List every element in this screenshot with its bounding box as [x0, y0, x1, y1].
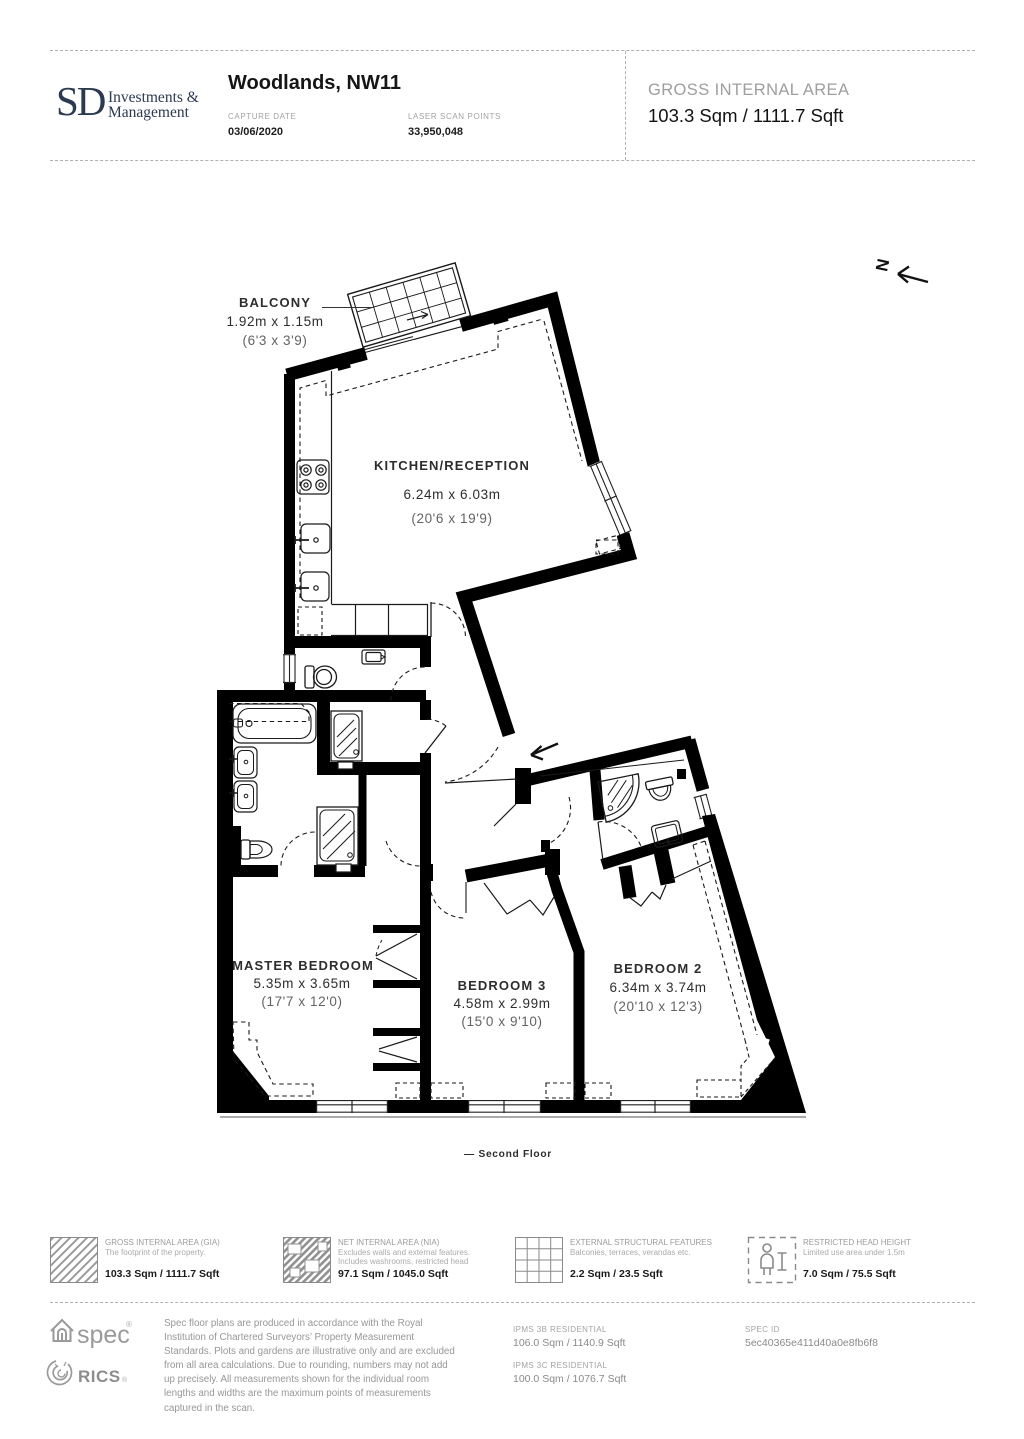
svg-text:— Second Floor: — Second Floor — [464, 1149, 552, 1160]
svg-text:BEDROOM 2: BEDROOM 2 — [614, 961, 703, 976]
svg-text:®: ® — [126, 1320, 132, 1329]
svg-text:4.58m x 2.99m: 4.58m x 2.99m — [453, 996, 550, 1011]
svg-text:(15'0 x 9'10): (15'0 x 9'10) — [461, 1014, 542, 1029]
svg-text:®: ® — [122, 1376, 128, 1384]
svg-text:RICS: RICS — [78, 1367, 121, 1386]
svg-text:6.34m x 3.74m: 6.34m x 3.74m — [609, 980, 706, 995]
svg-text:BALCONY: BALCONY — [239, 295, 311, 310]
svg-text:5.35m x 3.65m: 5.35m x 3.65m — [253, 976, 350, 991]
svg-text:(17'7 x 12'0): (17'7 x 12'0) — [261, 994, 342, 1009]
svg-text:6.24m x 6.03m: 6.24m x 6.03m — [403, 487, 500, 502]
svg-text:MASTER BEDROOM: MASTER BEDROOM — [232, 958, 374, 973]
svg-text:BEDROOM 3: BEDROOM 3 — [458, 978, 547, 993]
svg-text:(20'6 x 19'9): (20'6 x 19'9) — [411, 511, 492, 526]
svg-text:1.92m x 1.15m: 1.92m x 1.15m — [226, 314, 323, 329]
svg-text:(6'3 x 3'9): (6'3 x 3'9) — [242, 333, 307, 348]
svg-text:N: N — [872, 257, 893, 273]
svg-text:(20'10 x 12'3): (20'10 x 12'3) — [613, 999, 702, 1014]
svg-text:KITCHEN/RECEPTION: KITCHEN/RECEPTION — [374, 458, 530, 473]
svg-text:spec: spec — [77, 1321, 130, 1349]
